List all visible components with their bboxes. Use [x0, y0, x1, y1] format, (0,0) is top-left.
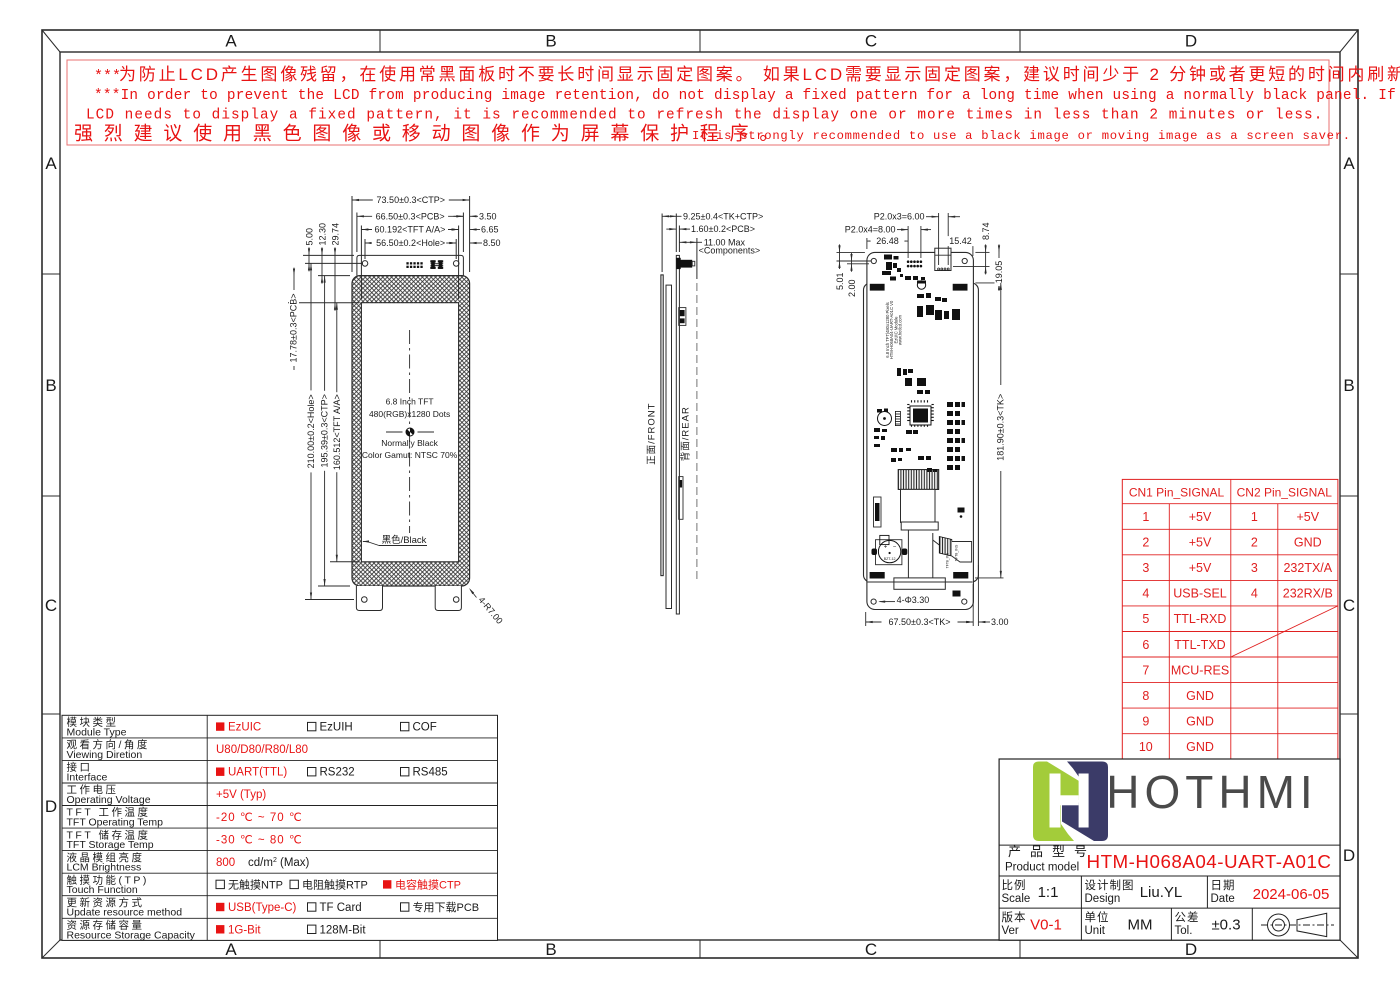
svg-text:800: 800	[216, 857, 235, 869]
svg-text:D: D	[1185, 32, 1197, 51]
svg-text:TFT Storage Temp: TFT Storage Temp	[67, 839, 154, 851]
svg-text:GND: GND	[1186, 740, 1214, 754]
svg-text:D: D	[1185, 940, 1197, 959]
svg-text:设计制图: 设计制图	[1085, 879, 1135, 892]
svg-text:232RX/B: 232RX/B	[1283, 587, 1333, 601]
svg-text:+: +	[884, 545, 888, 551]
svg-text:It is strongly recommended to: It is strongly recommended to use a blac…	[692, 129, 1351, 143]
svg-text:Update resource method: Update resource method	[67, 907, 183, 919]
svg-text:(Max): (Max)	[280, 857, 310, 869]
svg-text:A: A	[225, 940, 237, 959]
svg-text:CN2 Pin_SIGNAL: CN2 Pin_SIGNAL	[1237, 486, 1333, 500]
svg-text:TTL-RXD: TTL-RXD	[1174, 612, 1227, 626]
svg-text:Product model: Product model	[1005, 862, 1079, 874]
svg-text:比例: 比例	[1002, 878, 1027, 892]
svg-text:B: B	[1343, 376, 1354, 395]
svg-text:2: 2	[1251, 536, 1258, 550]
svg-text:TF Card: TF Card	[320, 902, 362, 914]
svg-text:B: B	[545, 32, 556, 51]
svg-text:Ver: Ver	[1002, 925, 1019, 937]
svg-text:USB-SEL: USB-SEL	[1173, 587, 1227, 601]
svg-text:强烈建议使用黑色图像或移动图像作为屏幕保护程序。: 强烈建议使用黑色图像或移动图像作为屏幕保护程序。	[74, 123, 789, 145]
svg-text:COF: COF	[413, 722, 437, 734]
svg-text:Touch Function: Touch Function	[67, 884, 138, 896]
svg-text:66.50±0.3<PCB>: 66.50±0.3<PCB>	[376, 211, 445, 221]
svg-text:9.25±0.4<TK+CTP>: 9.25±0.4<TK+CTP>	[683, 211, 763, 221]
svg-text:3: 3	[1142, 561, 1149, 575]
svg-text:5.00: 5.00	[305, 228, 315, 246]
svg-text:黑色/Black: 黑色/Black	[382, 534, 427, 546]
svg-text:产品型号: 产品型号	[1008, 844, 1096, 859]
svg-text:TFT8_INS: TFT8_INS	[955, 544, 959, 561]
svg-text:8.50: 8.50	[483, 238, 501, 248]
svg-text:B: B	[45, 376, 56, 395]
svg-text:Operating Voltage: Operating Voltage	[67, 794, 151, 806]
svg-text:Date: Date	[1211, 893, 1235, 905]
svg-text:6.8 Inch TFT: 6.8 Inch TFT	[386, 397, 434, 407]
svg-text:EzUIC: EzUIC	[228, 722, 261, 734]
svg-text:2024-06-05: 2024-06-05	[1253, 886, 1330, 903]
svg-text:USB(Type-C): USB(Type-C)	[228, 902, 297, 914]
svg-text:C: C	[865, 940, 877, 959]
svg-text:背面/REAR: 背面/REAR	[680, 406, 692, 461]
svg-text:Design: Design	[1085, 893, 1121, 905]
svg-text:U80/D80/R80/L80: U80/D80/R80/L80	[216, 744, 308, 756]
svg-text:TFT Operating Temp: TFT Operating Temp	[67, 817, 164, 829]
svg-text:29.74: 29.74	[331, 223, 341, 246]
svg-text:正面/FRONT: 正面/FRONT	[647, 403, 658, 465]
svg-text:3: 3	[1251, 561, 1258, 575]
svg-text:6.65: 6.65	[481, 225, 499, 235]
svg-text:3.50: 3.50	[479, 211, 497, 221]
svg-text:GND: GND	[1186, 714, 1214, 728]
svg-text:67.50±0.3<TK>: 67.50±0.3<TK>	[889, 617, 951, 627]
svg-text:5.01: 5.01	[835, 272, 845, 290]
svg-text:60.192<TFT A/A>: 60.192<TFT A/A>	[375, 225, 446, 235]
svg-text:A: A	[1343, 154, 1355, 173]
svg-text:日期: 日期	[1211, 879, 1236, 892]
svg-text:BZT-12: BZT-12	[884, 557, 896, 561]
svg-text:C: C	[45, 596, 57, 615]
svg-text:6: 6	[1142, 638, 1149, 652]
svg-text:+5V: +5V	[1297, 510, 1320, 524]
svg-text:73.50±0.3<CTP>: 73.50±0.3<CTP>	[377, 195, 445, 205]
svg-text:HOTHMI: HOTHMI	[1106, 766, 1317, 818]
svg-text:5: 5	[1142, 612, 1149, 626]
svg-text:P2.0x4=8.00: P2.0x4=8.00	[845, 225, 896, 235]
svg-text:160.512<TFT A/A>: 160.512<TFT A/A>	[332, 394, 342, 470]
svg-text:CN1 Pin_SIGNAL: CN1 Pin_SIGNAL	[1129, 486, 1225, 500]
svg-text:15.42: 15.42	[949, 236, 972, 246]
svg-text:2: 2	[273, 857, 277, 864]
svg-text:***In order to prevent the LCD: ***In order to prevent the LCD from prod…	[94, 88, 1400, 104]
svg-text:+5V: +5V	[1189, 536, 1212, 550]
svg-text:7: 7	[1142, 663, 1149, 677]
svg-text:RS232: RS232	[320, 767, 355, 779]
svg-text:+5V: +5V	[1189, 510, 1212, 524]
svg-text:D: D	[45, 797, 57, 816]
svg-text:1G-Bit: 1G-Bit	[228, 924, 261, 936]
svg-text:HTM-H068A04-UART-A01C: HTM-H068A04-UART-A01C	[1087, 851, 1332, 872]
svg-text:2: 2	[1142, 536, 1149, 550]
svg-text:MM: MM	[1128, 917, 1153, 934]
svg-text:EzUIH: EzUIH	[320, 722, 353, 734]
svg-text:为防止LCD产生图像残留，在使用常黑面板时不要长时间显示固定: 为防止LCD产生图像残留，在使用常黑面板时不要长时间显示固定图案。 如果LCD需…	[119, 64, 1400, 84]
svg-text:A: A	[45, 154, 57, 173]
svg-text:8.74: 8.74	[981, 222, 991, 240]
svg-text:56.50±0.2<Hole>: 56.50±0.2<Hole>	[376, 238, 445, 248]
svg-text:C: C	[865, 32, 877, 51]
svg-text:±0.3: ±0.3	[1211, 917, 1240, 934]
svg-text:电容触摸CTP: 电容触摸CTP	[395, 878, 461, 892]
svg-text:专用下载PCB: 专用下载PCB	[413, 900, 480, 914]
svg-text:+5V (Typ): +5V (Typ)	[216, 789, 266, 801]
svg-text:cd/m: cd/m	[248, 857, 273, 869]
svg-text:2.00: 2.00	[847, 279, 857, 297]
svg-text:V0-1: V0-1	[1030, 917, 1062, 934]
svg-text:D: D	[1343, 846, 1355, 865]
svg-text:LCM Brightness: LCM Brightness	[67, 862, 142, 874]
svg-text:195.39±0.3<CTP>: 195.39±0.3<CTP>	[320, 394, 330, 468]
svg-text:Viewing Diretion: Viewing Diretion	[67, 749, 143, 761]
svg-text:UART(TTL): UART(TTL)	[228, 767, 287, 779]
svg-text:-30 ℃ ~ 80 ℃: -30 ℃ ~ 80 ℃	[216, 834, 303, 846]
svg-text:<Components>: <Components>	[699, 245, 761, 255]
svg-text:RS485: RS485	[413, 767, 448, 779]
svg-text:19.05: 19.05	[994, 261, 1004, 284]
svg-text:1.60±0.2<PCB>: 1.60±0.2<PCB>	[691, 224, 755, 234]
svg-text:版本: 版本	[1002, 910, 1027, 924]
svg-text:9: 9	[1142, 714, 1149, 728]
svg-text:−: −	[893, 545, 897, 551]
svg-text:4-Φ3.30: 4-Φ3.30	[897, 595, 930, 605]
svg-text:A: A	[225, 32, 237, 51]
svg-text:3.00: 3.00	[991, 617, 1009, 627]
svg-text:Scale: Scale	[1002, 893, 1031, 905]
svg-text:232TX/A: 232TX/A	[1283, 561, 1332, 575]
svg-text:***: ***	[94, 68, 121, 85]
svg-text:MCU-RES: MCU-RES	[1171, 663, 1229, 677]
svg-text:www.hotlcd.com: www.hotlcd.com	[898, 314, 903, 345]
svg-text:12.30: 12.30	[318, 223, 328, 246]
svg-text:1: 1	[1142, 510, 1149, 524]
svg-text:B: B	[545, 940, 556, 959]
svg-text:4: 4	[1251, 587, 1258, 601]
svg-text:Color Gamut: NTSC 70%: Color Gamut: NTSC 70%	[362, 450, 458, 460]
svg-text:8: 8	[1142, 689, 1149, 703]
svg-text:C: C	[1343, 596, 1355, 615]
svg-text:181.90±0.3<TK>: 181.90±0.3<TK>	[996, 394, 1006, 461]
svg-text:Liu.YL: Liu.YL	[1140, 884, 1183, 901]
svg-text:480(RGB)x1280 Dots: 480(RGB)x1280 Dots	[369, 409, 450, 419]
svg-text:LCD needs to display a fixed p: LCD needs to display a fixed pattern, it…	[86, 108, 1323, 124]
svg-text:1:1: 1:1	[1038, 884, 1059, 901]
svg-text:无触摸NTP: 无触摸NTP	[228, 878, 283, 892]
svg-text:210.00±0.2<Hole>: 210.00±0.2<Hole>	[306, 394, 316, 468]
svg-text:+5V: +5V	[1189, 561, 1212, 575]
svg-text:Module Type: Module Type	[67, 726, 127, 738]
svg-text:Unit: Unit	[1085, 925, 1106, 937]
svg-text:4: 4	[1142, 587, 1149, 601]
svg-text:GND: GND	[1186, 689, 1214, 703]
svg-text:公差: 公差	[1175, 910, 1200, 924]
svg-text:-20 ℃ ~ 70 ℃: -20 ℃ ~ 70 ℃	[216, 812, 303, 824]
svg-text:Interface: Interface	[67, 771, 108, 783]
svg-text:GND: GND	[1294, 536, 1322, 550]
svg-text:Tol.: Tol.	[1175, 925, 1193, 937]
svg-text:26.48: 26.48	[876, 236, 899, 246]
svg-text:1: 1	[1251, 510, 1258, 524]
svg-text:10: 10	[1139, 740, 1153, 754]
svg-text:Normally Black: Normally Black	[381, 438, 438, 448]
svg-text:Resource Storage Capacity: Resource Storage Capacity	[67, 929, 196, 941]
svg-text:单位: 单位	[1085, 910, 1110, 924]
svg-text:TFT8_INS: TFT8_INS	[946, 552, 950, 568]
svg-text:电阻触摸RTP: 电阻触摸RTP	[302, 878, 368, 892]
svg-text:TTL-TXD: TTL-TXD	[1174, 638, 1225, 652]
svg-text:128M-Bit: 128M-Bit	[320, 924, 367, 936]
svg-text:17.78±0.3<PCB>: 17.78±0.3<PCB>	[289, 294, 299, 363]
svg-text:P2.0x3=6.00: P2.0x3=6.00	[874, 212, 925, 222]
